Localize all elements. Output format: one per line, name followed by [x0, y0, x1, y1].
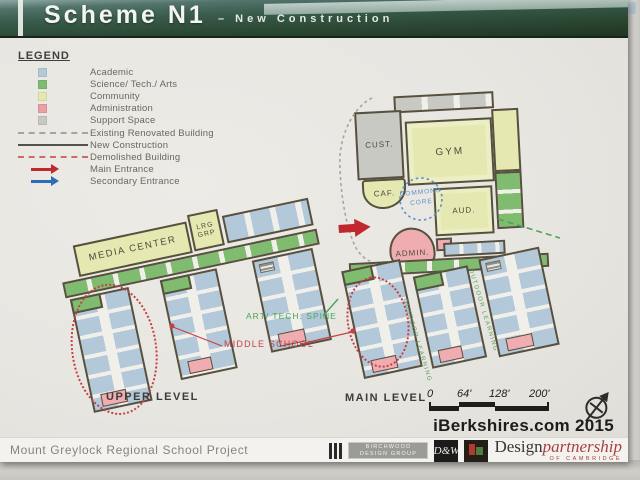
admin-tip-room	[505, 333, 534, 351]
support-rooms-band	[393, 91, 494, 113]
legend-item-support: Support Space	[18, 115, 188, 127]
poster-edge-strip	[18, 0, 23, 36]
birchwood-logo: BIRCHWOOD DESIGN GROUP	[348, 442, 428, 459]
upper-wing-3	[252, 248, 332, 353]
scale-tick-64: 64'	[457, 388, 471, 400]
tape-mark	[628, 2, 636, 14]
legend-heading: LEGEND	[18, 50, 188, 62]
title-band: Scheme N1 – New Construction	[0, 0, 628, 38]
legend-item-demolished: Demolished Building	[18, 151, 188, 163]
legend: LEGEND Academic Science/ Tech./ Arts Com…	[18, 50, 188, 188]
watermark: iBerkshires.com 2015	[433, 416, 614, 436]
footer-bar: Mount Greylock Regional School Project B…	[0, 437, 628, 462]
logos: BIRCHWOOD DESIGN GROUP D&W Designpartner…	[329, 438, 622, 463]
scale-tick-200: 200'	[529, 388, 549, 400]
science-strip	[494, 171, 524, 229]
dw-monogram-logo: D&W	[434, 440, 458, 462]
legend-item-existing: Existing Renovated Building	[18, 127, 188, 139]
upper-level-plan: MEDIA CENTER LRG GRP	[55, 192, 351, 418]
admin-tip-room	[438, 345, 464, 363]
legend-item-community: Community	[18, 90, 188, 102]
project-title: Mount Greylock Regional School Project	[10, 443, 248, 457]
main-level-caption: MAIN LEVEL	[345, 392, 427, 404]
poster: Scheme N1 – New Construction LEGEND Acad…	[0, 0, 628, 462]
community-swatch	[38, 92, 47, 101]
administration-swatch	[38, 104, 47, 113]
wall-bottom	[0, 460, 640, 480]
photo-of-scheme-board: Scheme N1 – New Construction LEGEND Acad…	[0, 0, 640, 480]
stairs	[485, 260, 502, 272]
scheme-subtitle: – New Construction	[218, 13, 393, 25]
scale-tick-0: 0	[427, 388, 433, 400]
main-entrance-arrow-icon	[31, 168, 51, 171]
science-room	[413, 271, 444, 292]
custodial-room: CUST.	[354, 110, 404, 180]
new-construction-line-sample	[18, 144, 88, 146]
secondary-entrance-arrow-icon	[31, 180, 51, 183]
main-level-wings: OUTDOOR LEARNING OUTDOOR LEARNING	[345, 248, 570, 388]
support-swatch	[38, 116, 47, 125]
scale-bar-segments	[429, 402, 551, 411]
birchwood-logo-icon	[329, 443, 342, 459]
science-room	[160, 274, 192, 295]
large-group-room: LRG GRP	[187, 209, 225, 252]
science-swatch	[38, 80, 47, 89]
stairs	[259, 261, 276, 273]
legend-item-academic: Academic	[18, 66, 188, 78]
gym-room: GYM	[405, 117, 495, 185]
admin-tip-room	[187, 356, 214, 374]
art-tech-spine-label: ART/ TECH. SPINE	[246, 311, 337, 321]
wall-right	[626, 0, 640, 480]
legend-item-administration: Administration	[18, 103, 188, 115]
scale-tick-128: 128'	[489, 388, 509, 400]
legend-item-new-construction: New Construction	[18, 139, 188, 151]
legend-item-main-entrance: Main Entrance	[18, 164, 188, 176]
scale-bar: 0 64' 128' 200'	[425, 388, 557, 412]
architect-logo-icon	[464, 440, 488, 462]
existing-line-sample	[18, 132, 88, 134]
legend-item-science: Science/ Tech./ Arts	[18, 78, 188, 90]
legend-item-secondary-entrance: Secondary Entrance	[18, 176, 188, 188]
middle-school-label: MIDDLE SCHOOL	[224, 339, 314, 349]
community-strip	[491, 108, 521, 172]
upper-level-caption: UPPER LEVEL	[106, 391, 199, 403]
scheme-title: Scheme N1	[44, 1, 206, 30]
academic-swatch	[38, 68, 47, 77]
design-partnership-logo: Designpartnership OF CAMBRIDGE	[494, 438, 622, 463]
upper-wing-2	[160, 268, 238, 380]
demolished-line-sample	[18, 156, 88, 158]
